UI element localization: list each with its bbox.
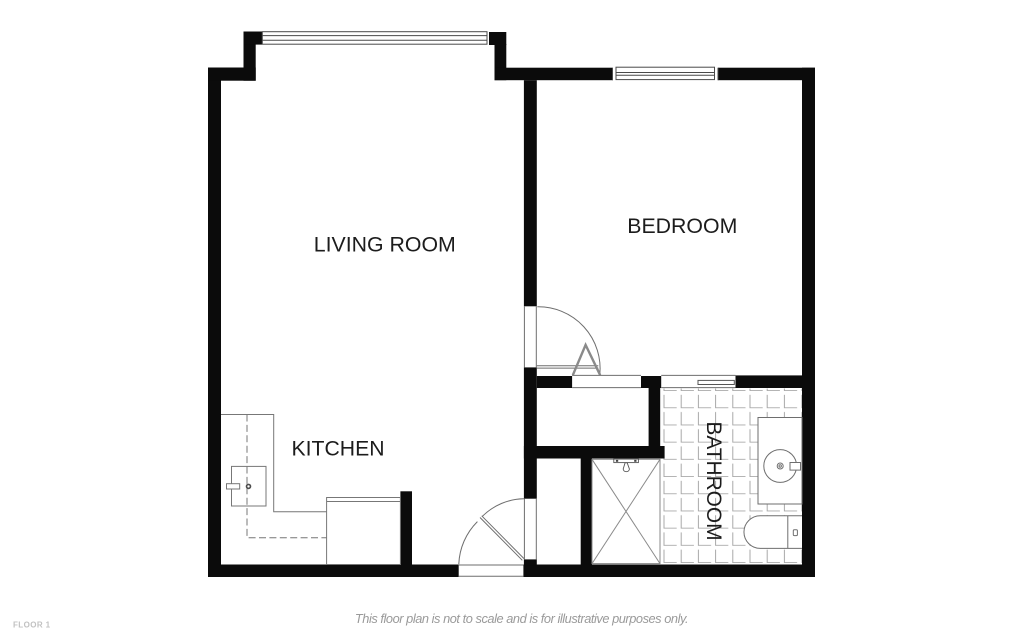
- svg-text:FLOOR 1: FLOOR 1: [13, 621, 51, 630]
- svg-text:This floor plan is not to scal: This floor plan is not to scale and is f…: [355, 611, 688, 626]
- svg-text:KITCHEN: KITCHEN: [292, 437, 385, 460]
- svg-text:LIVING ROOM: LIVING ROOM: [314, 233, 456, 257]
- svg-text:BEDROOM: BEDROOM: [627, 214, 737, 238]
- svg-text:BATHROOM: BATHROOM: [702, 421, 725, 540]
